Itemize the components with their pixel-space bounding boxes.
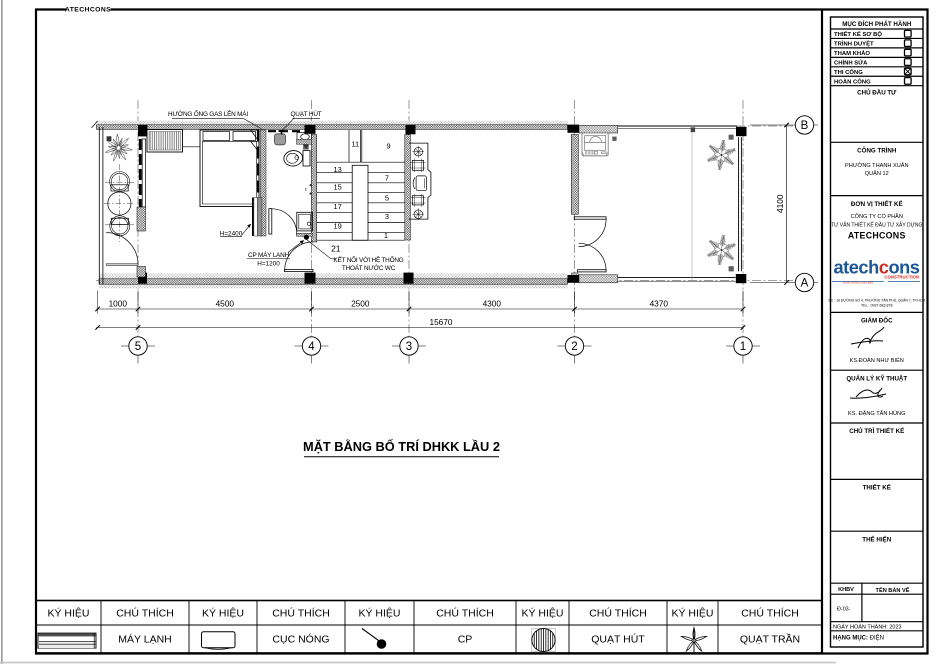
svg-text:3: 3	[385, 212, 389, 221]
svg-text:11: 11	[351, 140, 359, 149]
svg-text:9: 9	[386, 142, 390, 151]
svg-text:ĐƠN VỊ THIẾT KẾ: ĐƠN VỊ THIẾT KẾ	[851, 201, 903, 208]
svg-text:THI CÔNG: THI CÔNG	[834, 68, 863, 76]
svg-text:QUẠT HÚT: QUẠT HÚT	[591, 633, 645, 646]
svg-text:MẶT BẰNG BỐ TRÍ DHKK LẦU 2: MẶT BẰNG BỐ TRÍ DHKK LẦU 2	[303, 439, 500, 454]
svg-text:QUẠT TRẦN: QUẠT TRẦN	[740, 633, 800, 646]
svg-text:7: 7	[385, 173, 389, 182]
svg-text:CP: CP	[458, 634, 473, 646]
svg-text:HẠNG MỤC: ĐIỆN: HẠNG MỤC: ĐIỆN	[833, 634, 884, 642]
svg-text:5: 5	[385, 193, 389, 202]
svg-text:TƯ VẤN THIẾT KẾ ĐẦU TƯ XÂY DỰN: TƯ VẤN THIẾT KẾ ĐẦU TƯ XÂY DỰNG	[831, 222, 922, 229]
svg-text:B: B	[801, 120, 809, 132]
svg-text:MÁY LẠNH: MÁY LẠNH	[118, 633, 172, 646]
svg-text:THIẾT KẾ: THIẾT KẾ	[863, 485, 891, 492]
svg-text:PHƯỜNG THANH XUÂN: PHƯỜNG THANH XUÂN	[845, 162, 909, 169]
svg-text:NGÀY HOÀN THÀNH: 2023: NGÀY HOÀN THÀNH: 2023	[833, 624, 902, 631]
svg-text:CHÚ THÍCH: CHÚ THÍCH	[272, 607, 330, 620]
svg-text:THOÁT NƯỚC WC: THOÁT NƯỚC WC	[342, 263, 396, 272]
svg-text:CỤC NÓNG: CỤC NÓNG	[272, 633, 329, 646]
svg-text:HOÀN CÔNG: HOÀN CÔNG	[834, 77, 871, 85]
svg-text:21: 21	[331, 244, 341, 254]
svg-text:15670: 15670	[429, 317, 452, 327]
svg-text:KÝ HIỆU: KÝ HIỆU	[358, 607, 400, 620]
svg-text:H=2400: H=2400	[220, 230, 243, 237]
svg-text:QUẢN LÝ KỸ THUẬT: QUẢN LÝ KỸ THUẬT	[846, 375, 907, 382]
svg-text:THAM KHẢO: THAM KHẢO	[834, 50, 870, 57]
svg-text:MỤC ĐÍCH PHÁT HÀNH: MỤC ĐÍCH PHÁT HÀNH	[842, 20, 912, 28]
svg-text:ATECHCONS: ATECHCONS	[65, 7, 111, 14]
svg-text:2500: 2500	[351, 298, 370, 308]
svg-text:THIẾT KẾ SƠ BỘ: THIẾT KẾ SƠ BỘ	[834, 30, 882, 38]
svg-text:CONSTRUCTION: CONSTRUCTION	[884, 275, 919, 280]
svg-text:4: 4	[308, 341, 315, 353]
svg-text:A: A	[801, 278, 809, 290]
svg-text:3: 3	[406, 341, 412, 353]
svg-text:KÝ HIỆU: KÝ HIỆU	[47, 607, 89, 620]
svg-text:TEL : 0937.683.878: TEL : 0937.683.878	[861, 304, 892, 308]
svg-text:QUẬN 12: QUẬN 12	[865, 170, 889, 177]
svg-text:CÔNG TY CỔ PHẦN: CÔNG TY CỔ PHẦN	[851, 213, 903, 220]
svg-text:2: 2	[571, 341, 577, 353]
svg-text:CHÚ THÍCH: CHÚ THÍCH	[589, 607, 647, 620]
svg-text:13: 13	[333, 165, 341, 174]
svg-text:QUẠT HÚT: QUẠT HÚT	[291, 109, 322, 118]
svg-text:5: 5	[135, 341, 141, 353]
svg-text:ĐC : 18 ĐƯỜNG SỐ 4, PHƯỜNG TÂN: ĐC : 18 ĐƯỜNG SỐ 4, PHƯỜNG TÂN PHÚ, QUẬN…	[828, 298, 925, 303]
svg-text:Đ-03-: Đ-03-	[837, 607, 851, 613]
svg-text:KS. ĐẶNG TẤN HÙNG: KS. ĐẶNG TẤN HÙNG	[848, 410, 905, 417]
svg-text:CHÚ THÍCH: CHÚ THÍCH	[436, 607, 494, 620]
svg-text:15: 15	[333, 182, 341, 191]
svg-text:KS.ĐOÀN NHƯ BIỂN: KS.ĐOÀN NHƯ BIỂN	[850, 357, 904, 364]
svg-text:GIÁM ĐỐC: GIÁM ĐỐC	[861, 318, 893, 325]
svg-text:CÔNG TRÌNH: CÔNG TRÌNH	[857, 147, 897, 155]
svg-text:4370: 4370	[650, 298, 669, 308]
svg-text:CHỦ TRÌ THIẾT KẾ: CHỦ TRÌ THIẾT KẾ	[849, 427, 904, 435]
svg-text:TÊN BẢN VẼ: TÊN BẢN VẼ	[876, 586, 910, 594]
svg-text:KHBV: KHBV	[838, 587, 854, 593]
svg-text:KÝ HIỆU: KÝ HIỆU	[521, 607, 563, 620]
svg-text:4100: 4100	[775, 194, 785, 213]
svg-text:H=1200: H=1200	[257, 260, 280, 267]
svg-text:4500: 4500	[216, 298, 235, 308]
svg-text:THỂ HIỆN: THỂ HIỆN	[862, 535, 891, 543]
svg-text:TRÌNH DUYỆT: TRÌNH DUYỆT	[834, 39, 874, 47]
svg-text:1: 1	[384, 231, 388, 240]
svg-text:KÝ HIỆU: KÝ HIỆU	[671, 607, 713, 620]
svg-text:KÝ HIỆU: KÝ HIỆU	[202, 607, 244, 620]
svg-text:CP MÁY LẠNH: CP MÁY LẠNH	[248, 250, 289, 259]
svg-text:CHỦ ĐẦU TƯ: CHỦ ĐẦU TƯ	[857, 90, 897, 97]
svg-text:4300: 4300	[483, 298, 502, 308]
svg-text:17: 17	[333, 202, 341, 211]
svg-text:19: 19	[333, 222, 341, 231]
svg-text:CHỈNH SỬA: CHỈNH SỬA	[834, 59, 868, 66]
svg-text:1000: 1000	[109, 298, 128, 308]
svg-text:1: 1	[740, 341, 746, 353]
svg-text:ATECHCONS: ATECHCONS	[848, 231, 906, 241]
svg-text:CHÚ THÍCH: CHÚ THÍCH	[116, 607, 174, 620]
svg-text:CHÚ THÍCH: CHÚ THÍCH	[741, 607, 799, 620]
svg-text:E: E	[305, 188, 307, 192]
